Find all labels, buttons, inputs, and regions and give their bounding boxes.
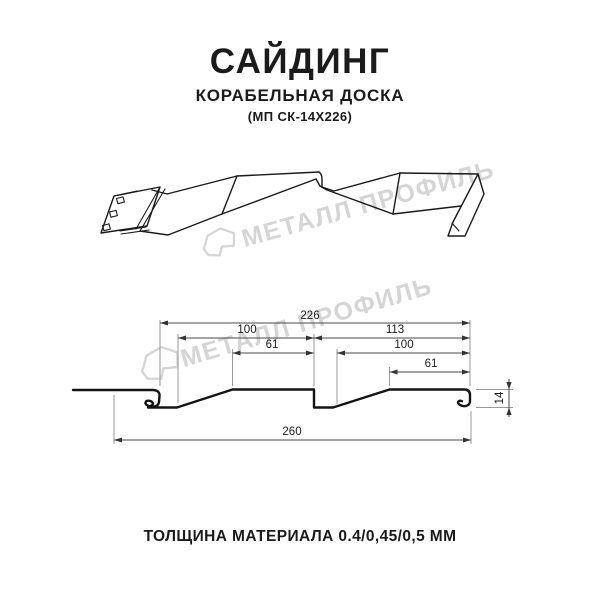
- catalog-drawing-page: САЙДИНГ КОРАБЕЛЬНАЯ ДОСКА (МП СК-14Х226)…: [0, 0, 600, 600]
- dim-label-right-pitch: 113: [386, 324, 404, 336]
- dim-label-left-pitch: 100: [237, 324, 256, 336]
- profile-3d-drawing: [101, 172, 484, 236]
- dim-label-profile-height: 14: [494, 392, 506, 405]
- technical-drawing-canvas: [0, 0, 600, 600]
- cross-section-drawing: [73, 390, 470, 408]
- dim-label-left-flat: 61: [266, 339, 279, 351]
- dimension-lines: [114, 320, 513, 444]
- nail-holes: [103, 197, 125, 231]
- dim-label-total-width: 226: [300, 310, 319, 322]
- thickness-note: ТОЛЩИНА МАТЕРИАЛА 0.4/0,45/0,5 ММ: [0, 528, 600, 546]
- dim-label-overall-width: 260: [282, 426, 301, 438]
- dim-label-right-flat: 61: [425, 358, 438, 370]
- metall-profil-logo-icon: [200, 226, 238, 259]
- dimension-arrows: [114, 321, 512, 443]
- dim-label-right-mid: 100: [394, 339, 413, 351]
